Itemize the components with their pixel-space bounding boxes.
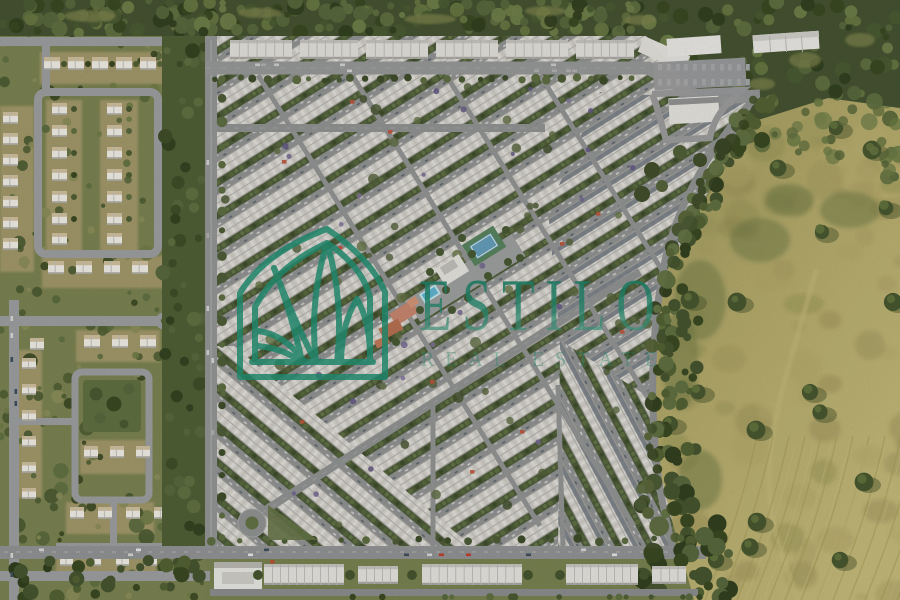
svg-text:REAL ESTATE: REAL ESTATE	[421, 349, 668, 372]
svg-text:ESTILO: ESTILO	[419, 265, 665, 346]
